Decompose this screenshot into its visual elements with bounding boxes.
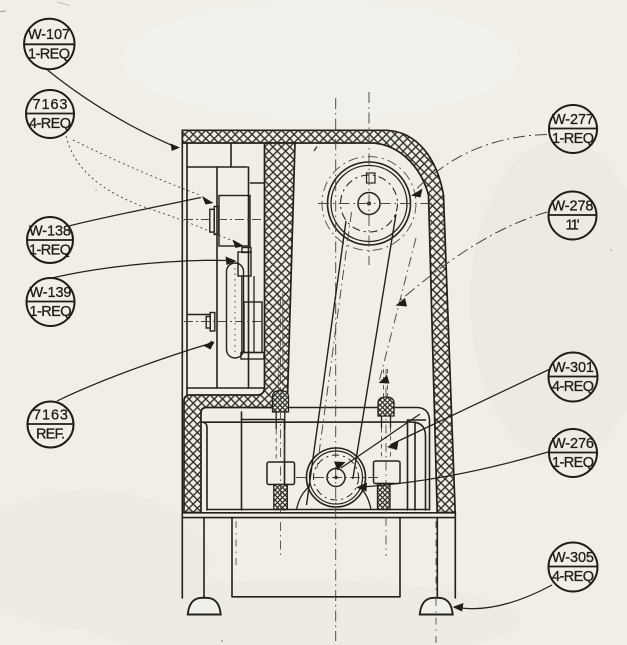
svg-text:W-276: W-276 bbox=[552, 436, 594, 452]
svg-text:W-138: W-138 bbox=[29, 224, 71, 240]
svg-text:W-107: W-107 bbox=[28, 27, 70, 43]
svg-text:REF.: REF. bbox=[36, 427, 65, 443]
svg-text:11': 11' bbox=[566, 218, 580, 234]
svg-text:1-REQ: 1-REQ bbox=[552, 131, 594, 147]
svg-text:4-REQ: 4-REQ bbox=[552, 569, 594, 585]
svg-text:4-REQ: 4-REQ bbox=[29, 116, 71, 132]
svg-text:1-REQ: 1-REQ bbox=[28, 47, 70, 63]
svg-text:1-REQ: 1-REQ bbox=[30, 304, 72, 320]
svg-text:1-REQ: 1-REQ bbox=[29, 243, 71, 259]
svg-text:W-277: W-277 bbox=[552, 112, 594, 128]
svg-text:W-139: W-139 bbox=[30, 285, 72, 301]
svg-text:1-REQ: 1-REQ bbox=[552, 455, 594, 471]
svg-text:W-301: W-301 bbox=[552, 360, 594, 376]
svg-text:7163: 7163 bbox=[33, 408, 68, 424]
svg-text:W-278: W-278 bbox=[552, 199, 594, 215]
svg-text:W-305: W-305 bbox=[552, 550, 594, 566]
svg-text:7163: 7163 bbox=[33, 97, 68, 113]
svg-text:4-REQ: 4-REQ bbox=[552, 379, 594, 395]
